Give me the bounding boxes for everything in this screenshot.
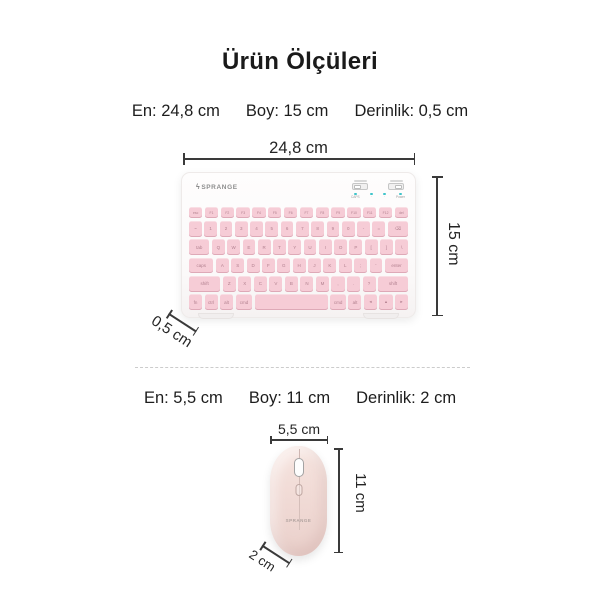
keyboard-key xyxy=(255,294,328,310)
led-indicator: · xyxy=(370,193,373,200)
switch-label-mark xyxy=(390,180,403,182)
switch-label-mark xyxy=(354,180,367,182)
keyboard-key: K xyxy=(323,258,336,274)
keyboard-key: 9 xyxy=(327,221,340,237)
keyboard-width-dim-line xyxy=(183,158,415,160)
keyboard-key: 0 xyxy=(342,221,355,237)
keyboard-key: 6 xyxy=(281,221,294,237)
product-dimensions-figure: Ürün Ölçüleri En: 24,8 cm Boy: 15 cm Der… xyxy=(0,0,600,600)
keyboard-key: Y xyxy=(288,239,301,255)
keyboard-key: ? xyxy=(363,276,376,292)
led-label: · xyxy=(384,196,385,200)
keyboard-key: . xyxy=(347,276,360,292)
section-divider xyxy=(135,367,470,368)
keyboard-key: esc xyxy=(189,207,202,218)
keyboard-key: F12 xyxy=(379,207,392,218)
keyboard-key: O xyxy=(334,239,347,255)
mouse-spec-depth: Derinlik: 2 cm xyxy=(356,389,456,408)
keyboard-spec-depth: Derinlik: 0,5 cm xyxy=(354,102,468,121)
keyboard-key: = xyxy=(372,221,385,237)
led-indicator: · xyxy=(383,193,386,200)
keyboard-key: alt xyxy=(348,294,361,310)
keyboard-key: enter xyxy=(385,258,408,274)
keyboard-height-dim-label: 15 cm xyxy=(444,222,462,266)
keyboard-image: ϟ SPRANGE CAPS··Power escF1F2F3F4F5F6F7F… xyxy=(181,172,416,318)
keyboard-key: 2 xyxy=(220,221,233,237)
keyboard-key: , xyxy=(331,276,344,292)
keyboard-brand-text: SPRANGE xyxy=(201,184,237,191)
led-label: · xyxy=(371,196,372,200)
mouse-height-dim-line xyxy=(338,448,340,553)
keyboard-key: ' xyxy=(370,258,383,274)
led-indicator: CAPS xyxy=(351,193,360,200)
keyboard-key: cmd xyxy=(330,294,346,310)
keyboard-key: X xyxy=(238,276,251,292)
keyboard-key: ~ xyxy=(189,221,202,237)
keyboard-key: ; xyxy=(354,258,367,274)
keyboard-key: F6 xyxy=(284,207,297,218)
keyboard-key: F xyxy=(262,258,275,274)
mouse-image: SPRANGE xyxy=(270,446,327,556)
keyboard-key: 3 xyxy=(235,221,248,237)
keyboard-spec-width: En: 24,8 cm xyxy=(132,102,220,121)
keyboard-height-dim-line xyxy=(436,176,438,316)
keyboard-brand: ϟ SPRANGE xyxy=(196,184,238,191)
keyboard-key: Z xyxy=(223,276,236,292)
keyboard-key: ⌫ xyxy=(388,221,408,237)
keyboard-key: V xyxy=(269,276,282,292)
keyboard-key: F10 xyxy=(347,207,360,218)
keyboard-key: 4 xyxy=(250,221,263,237)
keyboard-key: H xyxy=(293,258,306,274)
keyboard-spec-row: En: 24,8 cm Boy: 15 cm Derinlik: 0,5 cm xyxy=(0,102,600,121)
keyboard-key: 7 xyxy=(296,221,309,237)
keyboard-key: shift xyxy=(378,276,408,292)
keyboard-foot xyxy=(363,313,399,319)
keyboard-key: alt xyxy=(220,294,233,310)
keyboard-key: J xyxy=(308,258,321,274)
keyboard-key: shift xyxy=(189,276,220,292)
keyboard-key: F7 xyxy=(300,207,313,218)
keyboard-key: 1 xyxy=(204,221,217,237)
slider-switch-icon xyxy=(388,183,404,190)
power-switch xyxy=(388,180,404,190)
keyboard-key: F3 xyxy=(236,207,249,218)
keyboard-key: ] xyxy=(380,239,393,255)
scroll-wheel-icon xyxy=(294,458,304,477)
led-label: Power xyxy=(396,196,405,200)
keyboard-keys: escF1F2F3F4F5F6F7F8F9F10F11F12del~123456… xyxy=(189,207,408,310)
keyboard-key: cmd xyxy=(236,294,253,310)
keyboard-foot xyxy=(198,313,234,319)
keyboard-key: F5 xyxy=(268,207,281,218)
keyboard-key: M xyxy=(316,276,329,292)
keyboard-control-cluster: CAPS··Power xyxy=(350,180,406,200)
slider-switch-icon xyxy=(352,183,368,190)
keyboard-key: tab xyxy=(189,239,209,255)
keyboard-key: ▸ xyxy=(395,294,408,310)
keyboard-key: F1 xyxy=(205,207,218,218)
keyboard-key: S xyxy=(231,258,244,274)
keyboard-key: ctrl xyxy=(205,294,218,310)
mouse-spec-width: En: 5,5 cm xyxy=(144,389,223,408)
keyboard-key: Q xyxy=(212,239,225,255)
keyboard-key: [ xyxy=(365,239,378,255)
keyboard-key: B xyxy=(285,276,298,292)
keyboard-key: F9 xyxy=(331,207,344,218)
keyboard-key: R xyxy=(258,239,271,255)
brand-logo-icon: ϟ xyxy=(196,184,200,191)
keyboard-key: D xyxy=(247,258,260,274)
mouse-height-dim-label: 11 cm xyxy=(352,473,369,513)
indicator-led-row: CAPS··Power xyxy=(350,193,406,200)
keyboard-key: W xyxy=(227,239,240,255)
keyboard-key: ◂ xyxy=(364,294,377,310)
keyboard-key: U xyxy=(304,239,317,255)
page-title: Ürün Ölçüleri xyxy=(0,48,600,76)
mouse-depth-dim-label: 2 cm xyxy=(245,545,281,576)
mouse-width-dim-label: 5,5 cm xyxy=(270,421,328,437)
mouse-spec-height: Boy: 11 cm xyxy=(249,389,330,408)
keyboard-key: I xyxy=(319,239,332,255)
keyboard-key: fn xyxy=(189,294,202,310)
keyboard-key: ▴ xyxy=(379,294,392,310)
keyboard-key: - xyxy=(357,221,370,237)
keyboard-key: L xyxy=(339,258,352,274)
keyboard-key: F8 xyxy=(316,207,329,218)
led-indicator: Power xyxy=(396,193,405,200)
keyboard-key: F4 xyxy=(252,207,265,218)
keyboard-width-dim-label: 24,8 cm xyxy=(181,139,416,158)
keyboard-depth-dim: 0,5 cm xyxy=(157,313,197,350)
mouse-spec-row: En: 5,5 cm Boy: 11 cm Derinlik: 2 cm xyxy=(0,389,600,408)
keyboard-key: N xyxy=(300,276,313,292)
keyboard-key: \ xyxy=(395,239,408,255)
led-label: CAPS xyxy=(351,196,360,200)
connect-switch xyxy=(352,180,368,190)
keyboard-key: G xyxy=(277,258,290,274)
keyboard-key: P xyxy=(349,239,362,255)
mouse-brand-text: SPRANGE xyxy=(270,518,327,523)
keyboard-spec-height: Boy: 15 cm xyxy=(246,102,329,121)
mouse-width-dim-line xyxy=(270,439,328,441)
keyboard-key: C xyxy=(254,276,267,292)
keyboard-key: E xyxy=(243,239,256,255)
keyboard-key: del xyxy=(395,207,408,218)
keyboard-key: T xyxy=(273,239,286,255)
keyboard-key: 8 xyxy=(311,221,324,237)
keyboard-key: 5 xyxy=(265,221,278,237)
keyboard-key: F2 xyxy=(221,207,234,218)
dpi-button-icon xyxy=(295,484,302,496)
keyboard-key: F11 xyxy=(363,207,376,218)
keyboard-key: caps xyxy=(189,258,213,274)
keyboard-key: A xyxy=(216,258,229,274)
